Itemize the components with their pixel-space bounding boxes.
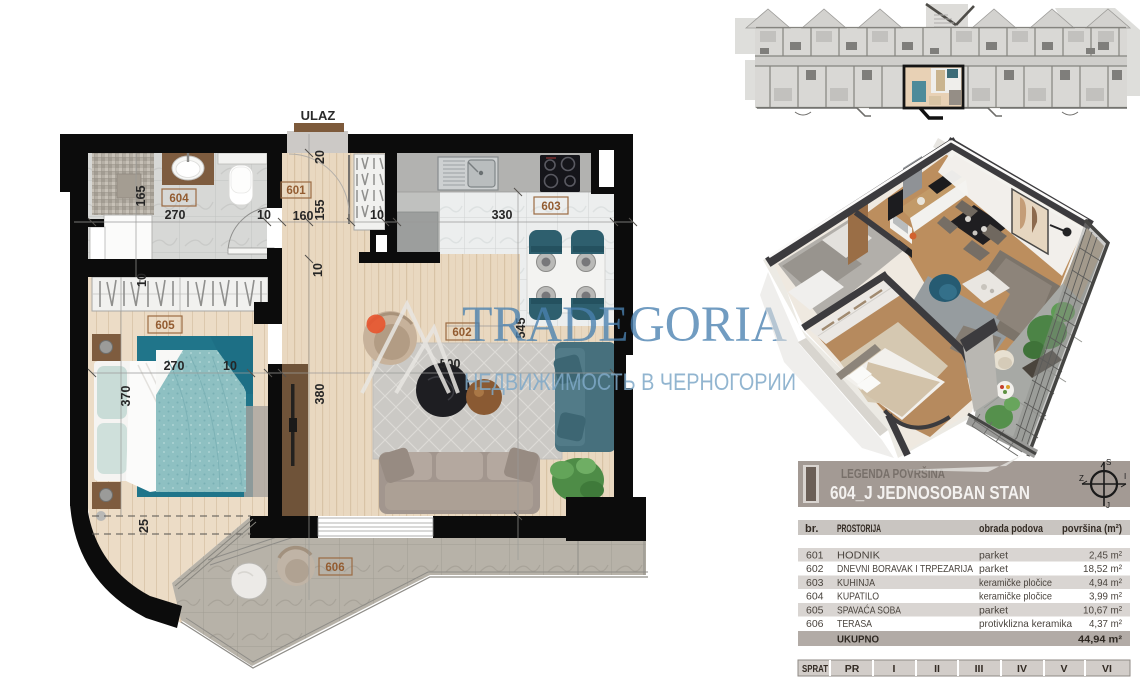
svg-text:10,67 m²: 10,67 m²	[1083, 605, 1122, 617]
svg-text:270: 270	[165, 208, 186, 222]
svg-text:DNEVNI BORAVAK I TRPEZARIJA: DNEVNI BORAVAK I TRPEZARIJA	[837, 563, 973, 575]
svg-text:606: 606	[325, 562, 344, 574]
svg-text:III: III	[975, 663, 984, 675]
svg-text:10: 10	[370, 208, 384, 222]
svg-text:НЕДВИЖИМОСТЬ В ЧЕРНОГОРИИ: НЕДВИЖИМОСТЬ В ЧЕРНОГОРИИ	[464, 369, 796, 396]
svg-text:601: 601	[806, 550, 824, 562]
svg-text:I: I	[1124, 472, 1126, 481]
svg-text:keramičke pločice: keramičke pločice	[979, 577, 1052, 589]
svg-text:obrada podova: obrada podova	[979, 523, 1044, 535]
svg-text:VI: VI	[1102, 663, 1112, 675]
svg-text:20: 20	[313, 150, 327, 164]
svg-text:S: S	[1106, 458, 1111, 467]
svg-text:18,52 m²: 18,52 m²	[1083, 563, 1122, 575]
svg-text:keramičke pločice: keramičke pločice	[979, 591, 1052, 603]
svg-text:44,94 m²: 44,94 m²	[1078, 634, 1123, 646]
svg-text:4,94 m²: 4,94 m²	[1089, 577, 1122, 589]
svg-text:SPAVAĆA SOBA: SPAVAĆA SOBA	[837, 604, 901, 617]
svg-text:604: 604	[169, 193, 189, 205]
svg-text:603: 603	[806, 577, 824, 589]
svg-text:TRADEGORIA: TRADEGORIA	[462, 297, 787, 353]
svg-text:parket: parket	[979, 563, 1008, 575]
svg-text:parket: parket	[979, 605, 1008, 617]
svg-text:370: 370	[119, 386, 133, 407]
svg-text:I: I	[893, 663, 896, 675]
svg-text:602: 602	[806, 563, 824, 575]
svg-text:II: II	[934, 663, 940, 675]
svg-text:parket: parket	[979, 550, 1008, 562]
svg-text:160: 160	[293, 209, 314, 223]
svg-text:601: 601	[286, 185, 306, 197]
svg-text:10: 10	[135, 273, 149, 287]
svg-text:165: 165	[134, 186, 148, 207]
svg-text:HODNIK: HODNIK	[837, 550, 880, 562]
svg-text:3,99 m²: 3,99 m²	[1089, 591, 1122, 603]
svg-text:površina (m²): površina (m²)	[1062, 523, 1122, 535]
svg-text:PROSTORIJA: PROSTORIJA	[837, 523, 881, 535]
svg-text:protivklizna keramika: protivklizna keramika	[979, 618, 1072, 630]
svg-text:KUPATILO: KUPATILO	[837, 591, 879, 603]
svg-text:J: J	[1106, 501, 1110, 510]
svg-text:604: 604	[806, 591, 824, 603]
svg-text:603: 603	[541, 201, 560, 213]
svg-text:604_J JEDNOSOBAN STAN: 604_J JEDNOSOBAN STAN	[830, 482, 1030, 503]
svg-text:270: 270	[164, 359, 185, 373]
svg-text:ULAZ: ULAZ	[301, 108, 336, 123]
svg-text:606: 606	[806, 618, 824, 630]
svg-text:10: 10	[311, 263, 325, 277]
svg-text:br.: br.	[805, 523, 818, 535]
svg-text:155: 155	[313, 200, 327, 221]
svg-text:10: 10	[257, 208, 271, 222]
svg-text:605: 605	[155, 320, 175, 332]
svg-text:25: 25	[137, 519, 151, 533]
svg-text:SPRAT: SPRAT	[802, 663, 828, 675]
svg-text:605: 605	[806, 605, 824, 617]
svg-text:IV: IV	[1017, 663, 1027, 675]
svg-text:2,45 m²: 2,45 m²	[1089, 550, 1122, 562]
svg-text:330: 330	[492, 208, 513, 222]
svg-text:LEGENDA POVRŠINA: LEGENDA POVRŠINA	[841, 466, 945, 481]
svg-text:V: V	[1060, 663, 1067, 675]
svg-text:4,37 m²: 4,37 m²	[1089, 618, 1122, 630]
svg-text:KUHINJA: KUHINJA	[837, 577, 875, 589]
svg-text:380: 380	[313, 384, 327, 405]
svg-text:UKUPNO: UKUPNO	[837, 634, 879, 646]
svg-text:Z: Z	[1079, 474, 1084, 483]
svg-text:10: 10	[223, 359, 237, 373]
svg-text:PR: PR	[845, 663, 860, 675]
svg-text:TERASA: TERASA	[837, 618, 872, 630]
